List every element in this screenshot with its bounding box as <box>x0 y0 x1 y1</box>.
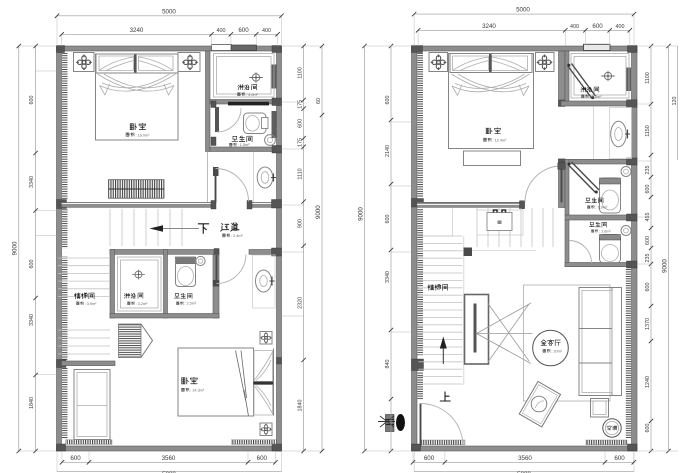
svg-text:1100: 1100 <box>297 67 303 79</box>
svg-text:1150: 1150 <box>645 125 651 137</box>
svg-text:: 3.6m²: : 3.6m² <box>590 95 603 99</box>
svg-text:: 1.6m²: : 1.6m² <box>599 229 612 233</box>
svg-text:3240: 3240 <box>482 23 496 30</box>
svg-text:: 1.9m²: : 1.9m² <box>595 206 608 210</box>
svg-text:1100: 1100 <box>645 72 651 84</box>
svg-text:600: 600 <box>645 185 651 194</box>
svg-text:400: 400 <box>217 28 226 34</box>
svg-text:235: 235 <box>645 254 651 263</box>
svg-text:: 1.5m²: : 1.5m² <box>238 143 251 147</box>
svg-text:3240: 3240 <box>130 27 144 34</box>
svg-text:5000: 5000 <box>516 7 530 14</box>
svg-text:: 3.9m²: : 3.9m² <box>85 302 98 306</box>
svg-text:: 14.3m²: : 14.3m² <box>190 388 205 392</box>
svg-text:3340: 3340 <box>385 271 391 283</box>
svg-text:900: 900 <box>297 219 303 228</box>
svg-text:120: 120 <box>672 97 678 106</box>
svg-text:9000: 9000 <box>661 259 668 273</box>
svg-text:5000: 5000 <box>162 8 176 15</box>
svg-text:600: 600 <box>70 455 81 462</box>
svg-text:: 12.4m²: : 12.4m² <box>493 138 508 142</box>
svg-text:: 2.5m²: : 2.5m² <box>184 302 197 306</box>
svg-text:600: 600 <box>385 96 391 105</box>
svg-text:1840: 1840 <box>297 400 303 412</box>
svg-text:600: 600 <box>645 283 651 292</box>
svg-text:: 2.4m²: : 2.4m² <box>231 234 244 238</box>
svg-text:600: 600 <box>614 455 625 462</box>
svg-text:600: 600 <box>297 119 303 128</box>
svg-text:600: 600 <box>592 23 603 30</box>
svg-text:600: 600 <box>645 236 651 245</box>
svg-text:1370: 1370 <box>645 318 651 330</box>
svg-text:9000: 9000 <box>357 207 364 221</box>
svg-text:9000: 9000 <box>315 205 322 219</box>
svg-text:840: 840 <box>385 360 391 369</box>
svg-text:3340: 3340 <box>29 176 35 188</box>
svg-text:600: 600 <box>238 27 249 34</box>
svg-text:175: 175 <box>297 138 303 147</box>
svg-text:1110: 1110 <box>297 168 303 179</box>
svg-text:600: 600 <box>257 455 268 462</box>
svg-text:400: 400 <box>262 28 271 34</box>
svg-text:3560: 3560 <box>518 455 532 462</box>
svg-text:400: 400 <box>616 24 625 30</box>
svg-text:: 3.2m²: : 3.2m² <box>136 302 149 306</box>
svg-text:3560: 3560 <box>162 455 176 462</box>
svg-text:60: 60 <box>316 98 322 104</box>
svg-text:9000: 9000 <box>11 241 18 255</box>
svg-text:: 20m²: : 20m² <box>551 349 562 353</box>
svg-text:600: 600 <box>645 424 651 433</box>
svg-text:3340: 3340 <box>29 314 35 326</box>
svg-text:2140: 2140 <box>385 145 391 157</box>
svg-text:600: 600 <box>385 215 391 224</box>
svg-text:600: 600 <box>424 455 435 462</box>
svg-text:600: 600 <box>29 96 35 105</box>
svg-text:: 4.0m²: : 4.0m² <box>246 93 259 97</box>
svg-text:2320: 2320 <box>297 297 303 309</box>
svg-text:235: 235 <box>645 166 651 175</box>
svg-text:400: 400 <box>570 24 579 30</box>
svg-text:1840: 1840 <box>29 397 35 409</box>
svg-text:175: 175 <box>297 100 303 109</box>
svg-text:1240: 1240 <box>645 376 651 388</box>
svg-text:600: 600 <box>29 260 35 269</box>
svg-text:: 16.0m²: : 16.0m² <box>136 133 151 137</box>
